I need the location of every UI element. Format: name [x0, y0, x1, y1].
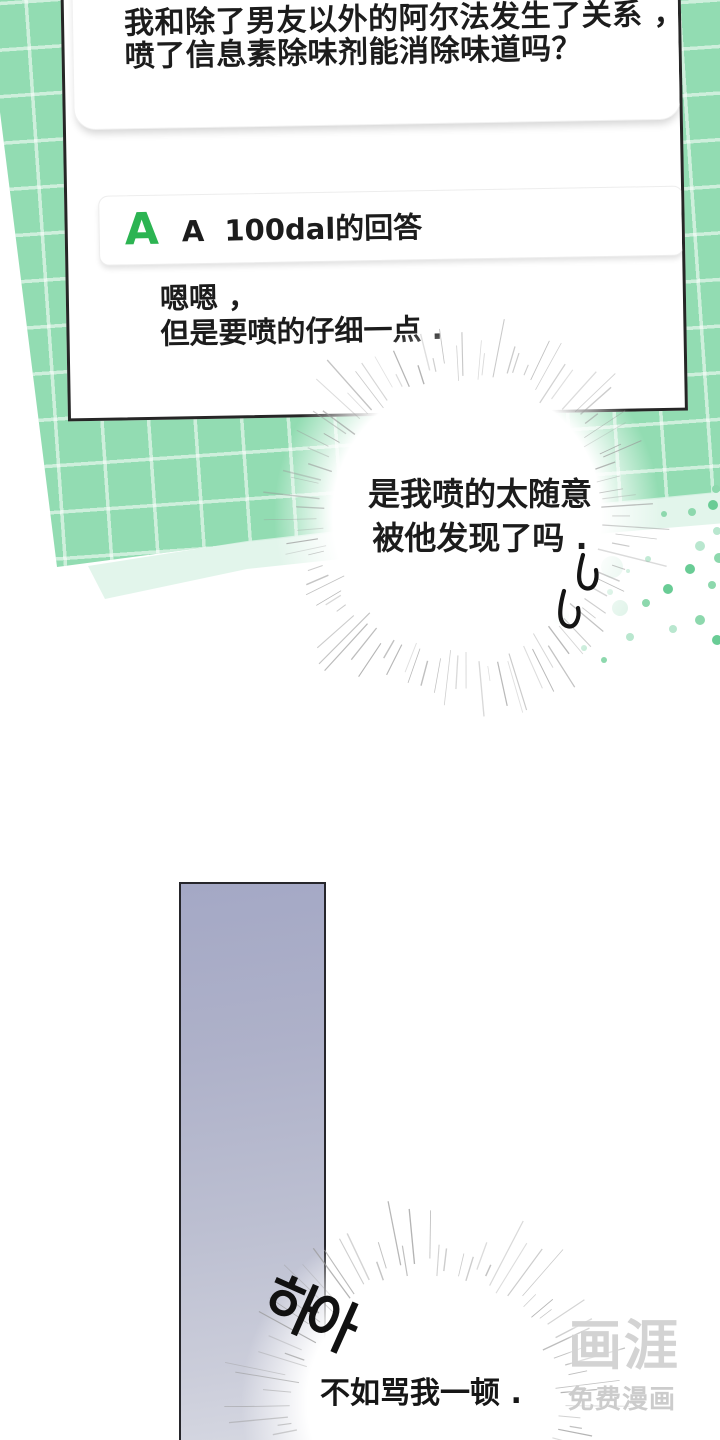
- question-text: 我和除了男友以外的阿尔法发生了关系 ， 喷了信息素除味剂能消除味道吗？: [124, 0, 685, 73]
- green-dot: [695, 615, 705, 625]
- answer-header-text: A 100dal的回答: [181, 204, 422, 250]
- green-dot: [695, 541, 705, 551]
- green-dot: [714, 553, 720, 563]
- comic-page: 我和除了男友以外的阿尔法发生了关系 ， 喷了信息素除味剂能消除味道吗？ A A …: [0, 0, 720, 1440]
- green-dot: [685, 564, 695, 574]
- thought-top-line-1: 是我喷的太随意: [330, 472, 630, 516]
- green-dot: [712, 635, 720, 645]
- thought-text-bottom: 不如骂我一顿 .: [320, 1368, 522, 1412]
- answer-badge: A: [124, 208, 159, 253]
- answer-header-card: A A 100dal的回答: [98, 186, 684, 266]
- green-dot: [713, 527, 720, 535]
- green-dot: [708, 581, 716, 589]
- double-hook-marks: [550, 545, 620, 645]
